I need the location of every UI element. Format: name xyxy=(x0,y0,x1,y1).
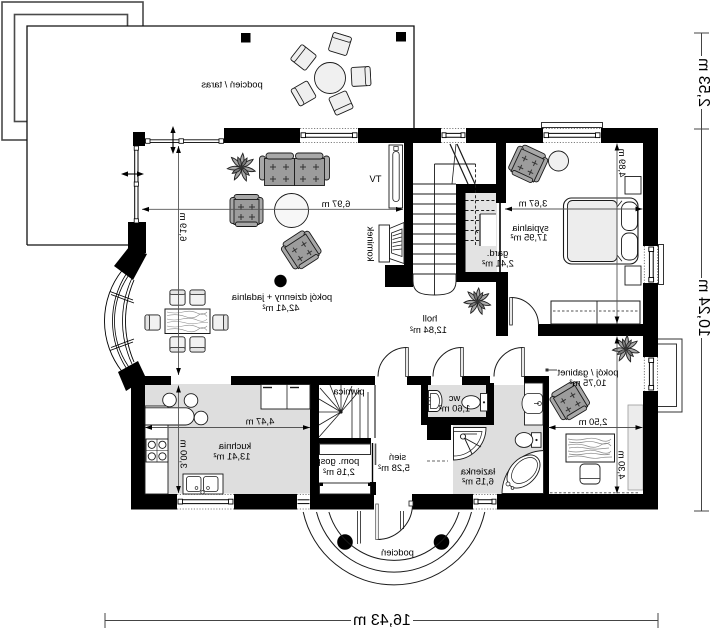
svg-text:kominek: kominek xyxy=(366,226,377,261)
svg-text:2,50 m: 2,50 m xyxy=(578,416,607,427)
svg-text:5,28 m²: 5,28 m² xyxy=(378,462,410,473)
svg-text:gard.: gard. xyxy=(487,247,508,258)
svg-text:sień: sień xyxy=(389,451,406,462)
svg-text:3,00 m: 3,00 m xyxy=(179,439,190,468)
svg-text:13,41 m²: 13,41 m² xyxy=(214,450,251,461)
svg-text:4,89 m: 4,89 m xyxy=(617,148,628,177)
svg-text:podcień: podcień xyxy=(381,547,414,558)
svg-text:piwnica: piwnica xyxy=(333,386,365,397)
svg-text:4,30 m: 4,30 m xyxy=(617,450,628,479)
svg-text:3,67 m: 3,67 m xyxy=(518,198,547,209)
svg-text:12,84 m²: 12,84 m² xyxy=(410,324,447,335)
svg-text:16,43 m: 16,43 m xyxy=(353,612,411,629)
svg-text:2,53 m: 2,53 m xyxy=(695,58,712,107)
svg-text:4,47 m: 4,47 m xyxy=(245,416,274,427)
svg-text:1,60 m²: 1,60 m² xyxy=(439,403,471,414)
svg-text:10,75 m²: 10,75 m² xyxy=(570,377,607,388)
svg-text:podcień / taras: podcień / taras xyxy=(201,79,263,90)
svg-text:42,41 m²: 42,41 m² xyxy=(263,302,300,313)
svg-text:TV: TV xyxy=(369,173,382,184)
svg-text:2,16 m²: 2,16 m² xyxy=(323,466,355,477)
svg-text:wc: wc xyxy=(448,392,461,403)
svg-text:pokój / gabinet: pokój / gabinet xyxy=(557,367,618,378)
svg-text:6,97 m: 6,97 m xyxy=(321,198,350,209)
svg-text:17,95 m²: 17,95 m² xyxy=(511,231,548,242)
svg-text:6,19 m: 6,19 m xyxy=(178,212,189,241)
svg-text:pom. gosp.: pom. gosp. xyxy=(313,455,359,466)
svg-text:holl: holl xyxy=(423,312,438,323)
svg-text:6,15 m²: 6,15 m² xyxy=(462,476,494,487)
svg-text:10,24 m: 10,24 m xyxy=(695,279,712,337)
svg-text:2,41 m²: 2,41 m² xyxy=(482,258,514,269)
svg-text:pokój dzienny + jadalnia: pokój dzienny + jadalnia xyxy=(231,291,332,302)
